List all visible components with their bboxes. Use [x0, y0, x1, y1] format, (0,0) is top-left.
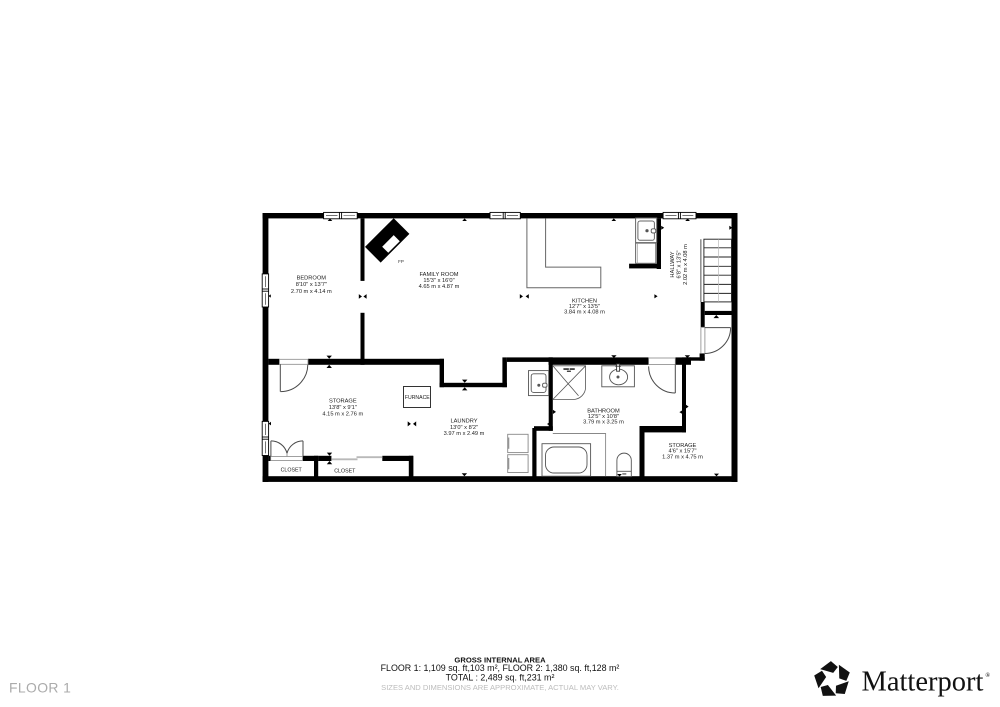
- svg-text:3.84 m x 4.08 m: 3.84 m x 4.08 m: [564, 310, 605, 316]
- svg-text:3.79 m x 3.25 m: 3.79 m x 3.25 m: [583, 419, 624, 425]
- svg-text:LAUNDRY: LAUNDRY: [450, 419, 477, 425]
- svg-text:FURNACE: FURNACE: [405, 395, 430, 401]
- svg-text:SIZES AND DIMENSIONS ARE APPRO: SIZES AND DIMENSIONS ARE APPROXIMATE, AC…: [381, 683, 619, 692]
- svg-text:13'8" x 9'1": 13'8" x 9'1": [329, 405, 357, 411]
- svg-text:FLOOR 1: FLOOR 1: [9, 680, 71, 696]
- svg-text:BEDROOM: BEDROOM: [297, 276, 327, 282]
- svg-text:TOTAL : 2,489 sq. ft,231 m²: TOTAL : 2,489 sq. ft,231 m²: [446, 673, 555, 683]
- svg-text:Matterport: Matterport: [862, 666, 984, 697]
- svg-text:CLOSET: CLOSET: [334, 468, 356, 474]
- svg-text:4.65 m x 4.87 m: 4.65 m x 4.87 m: [419, 284, 460, 290]
- svg-text:2.02 m x 4.08 m: 2.02 m x 4.08 m: [683, 244, 689, 285]
- svg-text:4.15 m x 2.76 m: 4.15 m x 2.76 m: [322, 411, 363, 417]
- svg-text:8'10" x 13'7": 8'10" x 13'7": [296, 282, 327, 288]
- svg-text:HALLWAY: HALLWAY: [670, 251, 676, 277]
- svg-text:FP: FP: [398, 259, 404, 264]
- svg-text:3.97 m x 2.49 m: 3.97 m x 2.49 m: [444, 431, 485, 437]
- svg-text:STORAGE: STORAGE: [329, 399, 357, 405]
- svg-text:FAMILY ROOM: FAMILY ROOM: [420, 272, 459, 278]
- svg-text:13'0" x 8'2": 13'0" x 8'2": [450, 425, 478, 431]
- svg-text:1.37 m x 4.75 m: 1.37 m x 4.75 m: [662, 454, 703, 460]
- svg-text:6'8" x 13'5": 6'8" x 13'5": [677, 250, 683, 278]
- svg-text:2.70 m x 4.14 m: 2.70 m x 4.14 m: [291, 289, 332, 295]
- svg-text:CLOSET: CLOSET: [281, 467, 303, 473]
- svg-text:®: ®: [985, 672, 990, 679]
